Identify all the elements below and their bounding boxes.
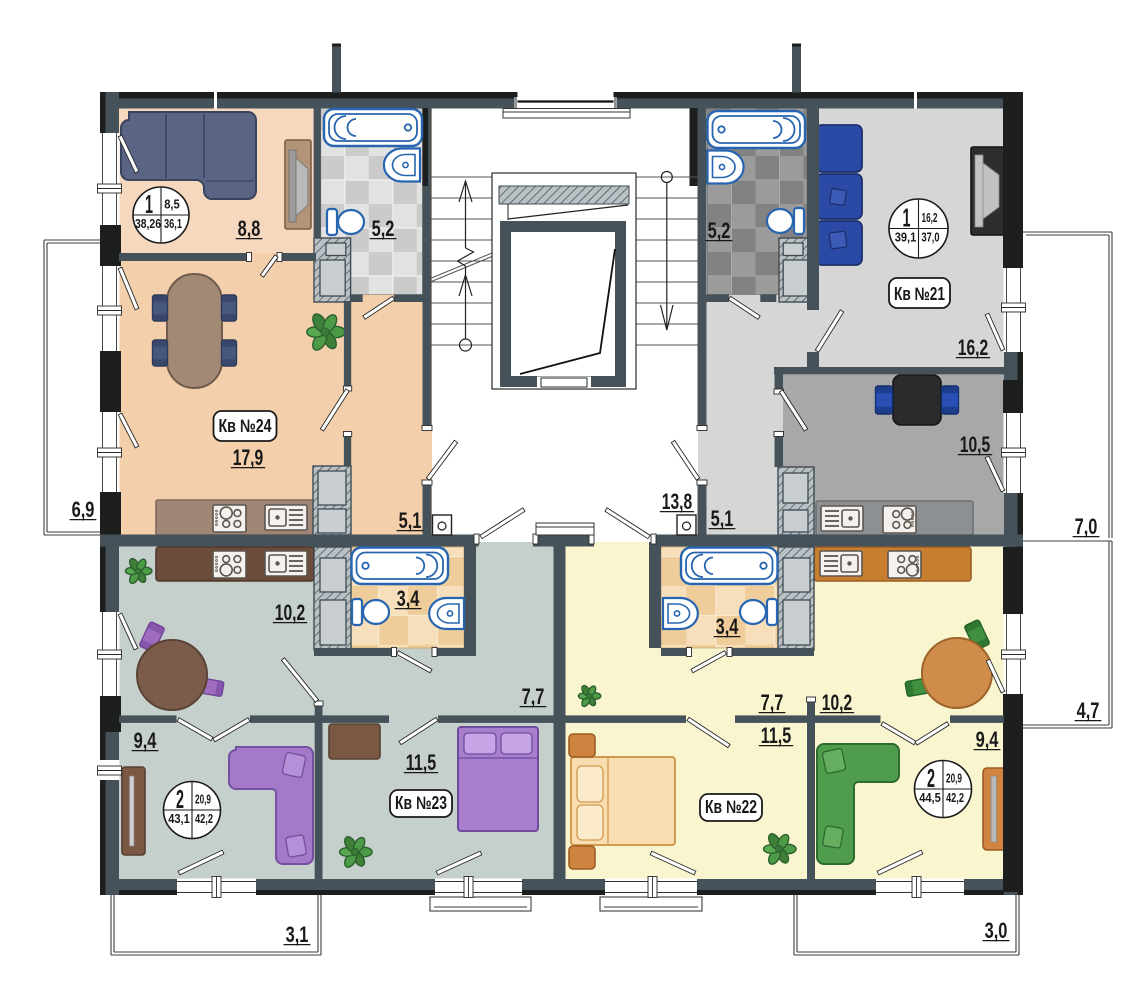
svg-text:9,4: 9,4 [976, 727, 999, 752]
svg-text:Кв №23: Кв №23 [395, 793, 447, 813]
svg-text:36,1: 36,1 [164, 216, 182, 231]
svg-text:20,9: 20,9 [195, 792, 211, 807]
svg-text:5,2: 5,2 [708, 218, 731, 243]
svg-text:10,2: 10,2 [822, 690, 852, 715]
svg-text:10,2: 10,2 [275, 600, 305, 625]
svg-text:4,7: 4,7 [1077, 698, 1100, 723]
svg-text:42,2: 42,2 [946, 790, 964, 805]
svg-text:5,1: 5,1 [711, 506, 734, 531]
svg-text:7,0: 7,0 [1075, 514, 1098, 539]
svg-text:6,9: 6,9 [72, 497, 95, 522]
svg-text:3,4: 3,4 [397, 586, 420, 611]
svg-text:16,2: 16,2 [958, 335, 988, 360]
svg-text:5,2: 5,2 [372, 216, 395, 241]
svg-text:Кв №21: Кв №21 [894, 284, 945, 304]
svg-text:Кв №22: Кв №22 [705, 797, 757, 817]
svg-text:5,1: 5,1 [399, 508, 422, 533]
svg-text:10,5: 10,5 [960, 432, 990, 457]
svg-text:42,2: 42,2 [195, 811, 213, 826]
svg-text:8,5: 8,5 [164, 197, 180, 212]
svg-text:16,2: 16,2 [922, 210, 938, 225]
svg-text:13,8: 13,8 [662, 489, 692, 514]
svg-text:39,1: 39,1 [895, 230, 917, 245]
svg-text:20,9: 20,9 [946, 771, 962, 786]
svg-text:3,1: 3,1 [286, 922, 309, 947]
svg-text:1: 1 [903, 203, 911, 233]
svg-text:11,5: 11,5 [761, 723, 791, 748]
svg-text:2: 2 [927, 763, 935, 793]
svg-text:7,7: 7,7 [761, 690, 784, 715]
svg-text:17,9: 17,9 [233, 445, 263, 470]
svg-text:37,0: 37,0 [922, 230, 940, 245]
svg-text:1: 1 [145, 189, 153, 219]
svg-text:8,8: 8,8 [238, 216, 261, 241]
svg-text:43,1: 43,1 [168, 811, 190, 826]
svg-text:3,4: 3,4 [716, 614, 739, 639]
svg-text:38,26: 38,26 [135, 216, 161, 231]
svg-text:7,7: 7,7 [522, 684, 545, 709]
svg-text:44,5: 44,5 [919, 790, 941, 805]
svg-text:Кв №24: Кв №24 [219, 416, 272, 436]
svg-text:2: 2 [176, 784, 184, 814]
svg-text:9,4: 9,4 [134, 728, 157, 753]
svg-text:3,0: 3,0 [985, 918, 1008, 943]
svg-text:11,5: 11,5 [406, 750, 436, 775]
